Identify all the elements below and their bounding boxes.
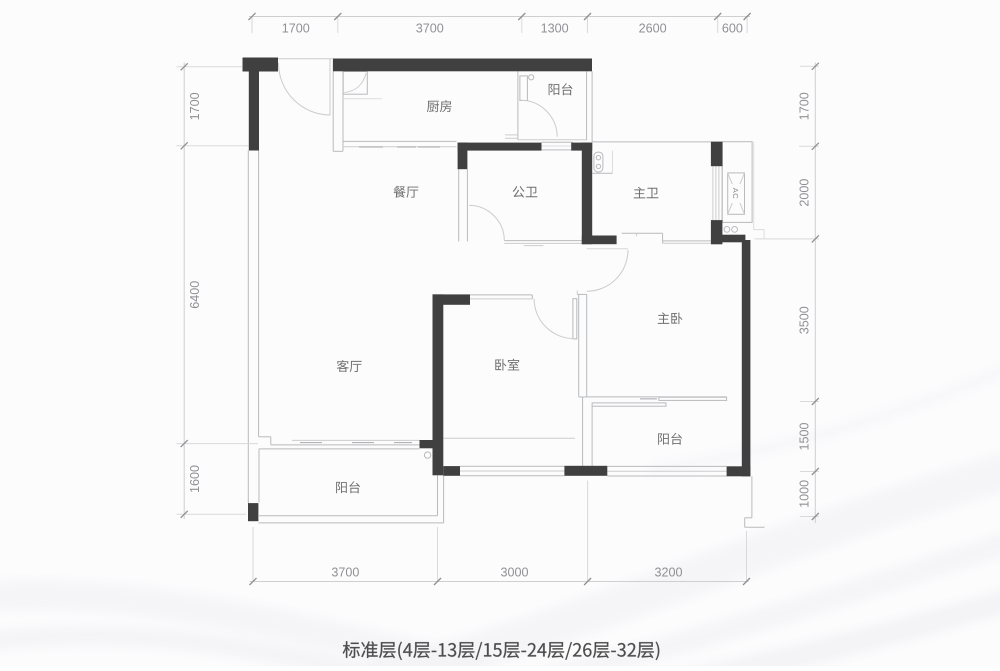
svg-text:3700: 3700 xyxy=(416,22,444,36)
svg-text:AC: AC xyxy=(731,188,740,200)
svg-text:6400: 6400 xyxy=(188,281,202,309)
svg-text:1000: 1000 xyxy=(798,480,812,508)
svg-text:1300: 1300 xyxy=(541,22,569,36)
svg-text:1700: 1700 xyxy=(188,92,202,120)
svg-text:3200: 3200 xyxy=(654,566,682,580)
svg-text:1500: 1500 xyxy=(798,422,812,450)
svg-text:600: 600 xyxy=(722,22,743,36)
svg-text:3000: 3000 xyxy=(500,566,528,580)
svg-text:3700: 3700 xyxy=(331,566,359,580)
svg-text:1700: 1700 xyxy=(798,92,812,120)
svg-text:1600: 1600 xyxy=(188,465,202,493)
svg-text:2600: 2600 xyxy=(639,22,667,36)
svg-text:1700: 1700 xyxy=(282,22,310,36)
svg-text:2000: 2000 xyxy=(798,179,812,207)
svg-text:3500: 3500 xyxy=(798,306,812,334)
